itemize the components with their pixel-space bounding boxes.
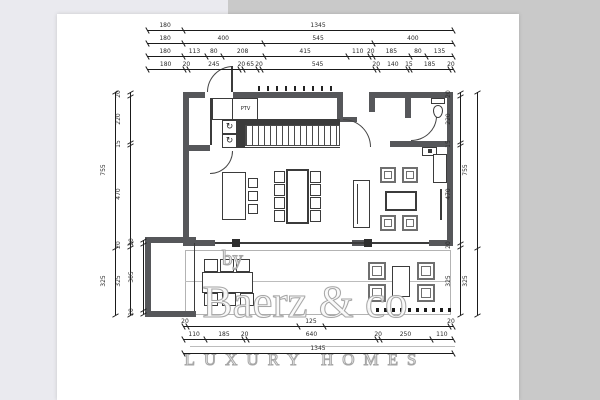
dim-line [183,339,453,340]
dim-label: 20 [439,61,463,68]
dim-label: 20 [233,331,257,338]
dim-tick [451,27,455,34]
dim-label: 305 [128,268,136,286]
dim-label: 15 [115,135,123,153]
dim-label: 180 [153,22,177,29]
dim-label: 80 [202,48,226,55]
dim-label: 250 [393,331,417,338]
dim-label: 470 [115,185,123,203]
dim-tick [451,40,455,47]
dim-label: 545 [306,35,330,42]
dim-label: 325 [445,272,453,290]
dim-label: 20 [439,318,463,325]
dim-label: 1345 [306,22,330,29]
dim-label: 20 [115,236,123,254]
dim-label: 110 [182,331,206,338]
dim-tick [140,312,147,316]
dim-label: 110 [430,331,454,338]
dim-tick [451,350,455,357]
dim-label: 20 [128,233,136,251]
dim-tick [112,313,119,317]
dim-line [143,240,144,314]
dim-label: 20 [128,303,136,321]
dim-label: 545 [306,61,330,68]
dim-label: 20 [445,85,453,103]
dim-tick [451,53,455,60]
dim-tick [474,313,481,317]
dim-label: 400 [211,35,235,42]
dim-label: 470 [445,185,453,203]
dim-label: 220 [115,110,123,128]
dim-label: 20 [247,61,271,68]
dim-line [147,43,453,44]
dim-label: 180 [153,48,177,55]
dim-label: 208 [231,48,255,55]
dim-label: 185 [379,48,403,55]
dim-line [183,353,453,354]
dim-label: 325 [462,272,470,290]
dim-label: 20 [366,331,390,338]
dim-label: 20 [174,61,198,68]
dim-label: 180 [153,35,177,42]
dim-label: 20 [115,85,123,103]
dim-label: 415 [293,48,317,55]
dim-label: 15 [445,135,453,153]
dim-label: 325 [115,272,123,290]
dim-line [147,56,453,57]
dim-label: 640 [299,331,323,338]
dim-label: 245 [202,61,226,68]
dim-label: 220 [445,110,453,128]
dim-label: 325 [100,272,108,290]
floorplan-screenshot: PTV ↻ ↻ [0,0,600,400]
dim-label: 400 [401,35,425,42]
dim-line [460,92,461,315]
dimension-annotations: 1801345180400545400180113802084151102018… [0,0,600,400]
dim-line [477,92,478,315]
dim-label: 755 [100,161,108,179]
dim-line [147,30,453,31]
dim-label: 80 [406,48,430,55]
dim-label: 20 [445,236,453,254]
dim-label: 1345 [306,345,330,352]
dim-label: 755 [462,161,470,179]
dim-label: 20 [173,318,197,325]
dim-line [183,326,453,327]
dim-label: 125 [299,318,323,325]
dim-label: 135 [427,48,451,55]
